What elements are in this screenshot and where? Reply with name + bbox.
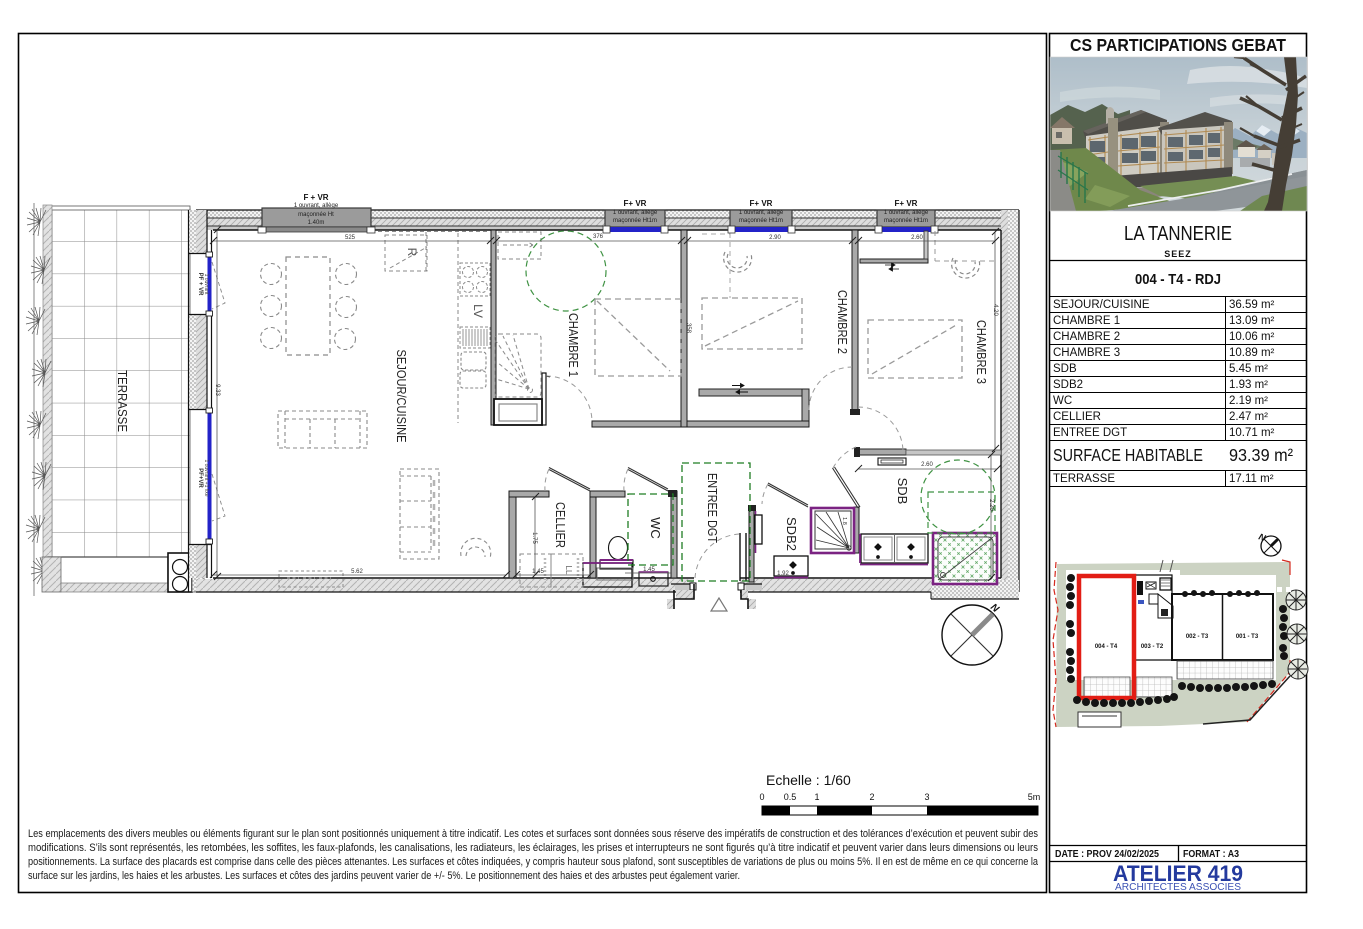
svg-text:1.8: 1.8 <box>841 517 847 525</box>
svg-text:2.60: 2.60 <box>921 462 933 468</box>
svg-text:SURFACE HABITABLE: SURFACE HABITABLE <box>1053 445 1203 465</box>
svg-text:13.09 m²: 13.09 m² <box>1229 315 1275 327</box>
svg-text:CHAMBRE 3: CHAMBRE 3 <box>1053 347 1120 359</box>
svg-text:SDB: SDB <box>895 478 910 505</box>
svg-text:SDB2: SDB2 <box>1053 379 1083 391</box>
svg-text:3: 3 <box>924 792 929 802</box>
svg-text:4.20: 4.20 <box>992 304 998 316</box>
svg-text:17.11 m²: 17.11 m² <box>1229 473 1274 485</box>
svg-text:CELLIER: CELLIER <box>1053 411 1101 423</box>
svg-text:1.45: 1.45 <box>532 569 544 575</box>
svg-text:1.40m: 1.40m <box>308 220 325 226</box>
svg-text:376: 376 <box>593 234 604 240</box>
svg-text:1 ouvrant: 1 ouvrant <box>203 274 209 295</box>
svg-text:CELLIER: CELLIER <box>553 502 568 548</box>
svg-text:FORMAT : A3: FORMAT : A3 <box>1183 848 1239 860</box>
svg-text:LA TANNERIE: LA TANNERIE <box>1124 223 1232 245</box>
svg-text:CS PARTICIPATIONS GEBAT: CS PARTICIPATIONS GEBAT <box>1070 35 1286 55</box>
svg-text:2: 2 <box>869 792 874 802</box>
svg-text:Echelle : 1/60: Echelle : 1/60 <box>766 772 851 788</box>
svg-text:maçonnée Ht1m: maçonnée Ht1m <box>613 218 657 224</box>
svg-text:WC: WC <box>1053 395 1072 407</box>
svg-text:0: 0 <box>759 792 764 802</box>
svg-text:modifications. S’ils sont repr: modifications. S’ils sont représentés, l… <box>28 842 1038 854</box>
svg-text:SEJOUR/CUISINE: SEJOUR/CUISINE <box>1053 299 1150 311</box>
svg-text:5.45 m²: 5.45 m² <box>1229 363 1268 375</box>
svg-text:CHAMBRE 2: CHAMBRE 2 <box>1053 331 1120 343</box>
svg-text:maçonnée Ht1m: maçonnée Ht1m <box>884 218 928 224</box>
svg-text:F+ VR: F+ VR <box>750 199 773 208</box>
svg-text:36.59 m²: 36.59 m² <box>1229 299 1275 311</box>
svg-text:ARCHITECTES ASSOCIES: ARCHITECTES ASSOCIES <box>1115 882 1241 893</box>
svg-text:positionnements. La surface de: positionnements. La surface des placards… <box>28 856 1039 868</box>
svg-text:surface sur les jardins, les h: surface sur les jardins, les haies et le… <box>28 870 740 882</box>
svg-text:9.33: 9.33 <box>214 384 220 396</box>
svg-text:1 ouvrant, allège: 1 ouvrant, allège <box>884 210 929 216</box>
svg-text:LL: LL <box>564 566 573 575</box>
svg-text:1: 1 <box>814 792 819 802</box>
svg-text:1.92: 1.92 <box>777 571 789 577</box>
svg-text:004 - T4 - RDJ: 004 - T4 - RDJ <box>1135 272 1221 288</box>
svg-text:TERRASSE: TERRASSE <box>115 370 130 432</box>
svg-text:1.93 m²: 1.93 m² <box>1229 379 1268 391</box>
svg-text:003 - T2: 003 - T2 <box>1141 644 1164 650</box>
svg-text:2.20: 2.20 <box>988 499 994 511</box>
svg-text:10.06 m²: 10.06 m² <box>1229 331 1275 343</box>
svg-text:1 ouvrant, allège: 1 ouvrant, allège <box>739 210 784 216</box>
svg-text:DATE : PROV 24/02/2025: DATE : PROV 24/02/2025 <box>1055 848 1159 860</box>
svg-text:CHAMBRE 2: CHAMBRE 2 <box>835 290 850 354</box>
svg-text:525: 525 <box>345 235 356 241</box>
svg-text:1.45: 1.45 <box>643 567 655 573</box>
svg-text:SDB: SDB <box>1053 363 1077 375</box>
svg-text:1 ouvrant +1 fixe: 1 ouvrant +1 fixe <box>203 459 209 496</box>
svg-text:2.90: 2.90 <box>769 235 781 241</box>
svg-text:0.5: 0.5 <box>784 792 797 802</box>
svg-text:358: 358 <box>685 323 691 334</box>
svg-text:LV: LV <box>471 304 485 318</box>
svg-text:Les emplacements des divers me: Les emplacements des divers meubles ou é… <box>28 828 1038 840</box>
svg-text:CHAMBRE 3: CHAMBRE 3 <box>974 320 989 384</box>
svg-text:ENTREE DGT: ENTREE DGT <box>705 473 720 543</box>
svg-text:5m: 5m <box>1028 792 1041 802</box>
svg-text:PF + VR: PF + VR <box>197 273 203 297</box>
svg-text:2.60: 2.60 <box>911 235 923 241</box>
svg-text:F+ VR: F+ VR <box>624 199 647 208</box>
svg-text:TERRASSE: TERRASSE <box>1053 473 1115 485</box>
svg-text:2.47 m²: 2.47 m² <box>1229 411 1268 423</box>
svg-text:ENTREE DGT: ENTREE DGT <box>1053 427 1127 439</box>
svg-text:001 - T3: 001 - T3 <box>1236 634 1259 640</box>
svg-text:004 - T4: 004 - T4 <box>1095 644 1118 650</box>
svg-text:5.62: 5.62 <box>351 569 363 575</box>
svg-text:WC: WC <box>648 517 663 539</box>
svg-text:1 ouvrant, allège: 1 ouvrant, allège <box>613 210 658 216</box>
svg-text:F + VR: F + VR <box>303 193 328 202</box>
svg-text:F+ VR: F+ VR <box>895 199 918 208</box>
svg-text:CHAMBRE 1: CHAMBRE 1 <box>1053 315 1120 327</box>
svg-text:R: R <box>405 248 419 257</box>
svg-text:1 ouvrant, allège: 1 ouvrant, allège <box>294 203 339 209</box>
svg-text:SEEZ: SEEZ <box>1164 249 1192 259</box>
svg-text:SEJOUR/CUISINE: SEJOUR/CUISINE <box>394 350 409 443</box>
svg-text:2.19 m²: 2.19 m² <box>1229 395 1268 407</box>
svg-text:maçonnée Ht1m: maçonnée Ht1m <box>739 218 783 224</box>
svg-text:SDB2: SDB2 <box>784 517 799 551</box>
svg-text:CHAMBRE 1: CHAMBRE 1 <box>566 313 581 377</box>
svg-text:1.75: 1.75 <box>531 532 537 544</box>
svg-text:002 - T3: 002 - T3 <box>1186 634 1209 640</box>
svg-text:PF+VR: PF+VR <box>197 468 203 488</box>
svg-text:93.39 m²: 93.39 m² <box>1229 445 1293 465</box>
svg-text:10.71 m²: 10.71 m² <box>1229 427 1275 439</box>
svg-text:maçonnée Ht: maçonnée Ht <box>298 212 334 218</box>
svg-text:10.89 m²: 10.89 m² <box>1229 347 1275 359</box>
